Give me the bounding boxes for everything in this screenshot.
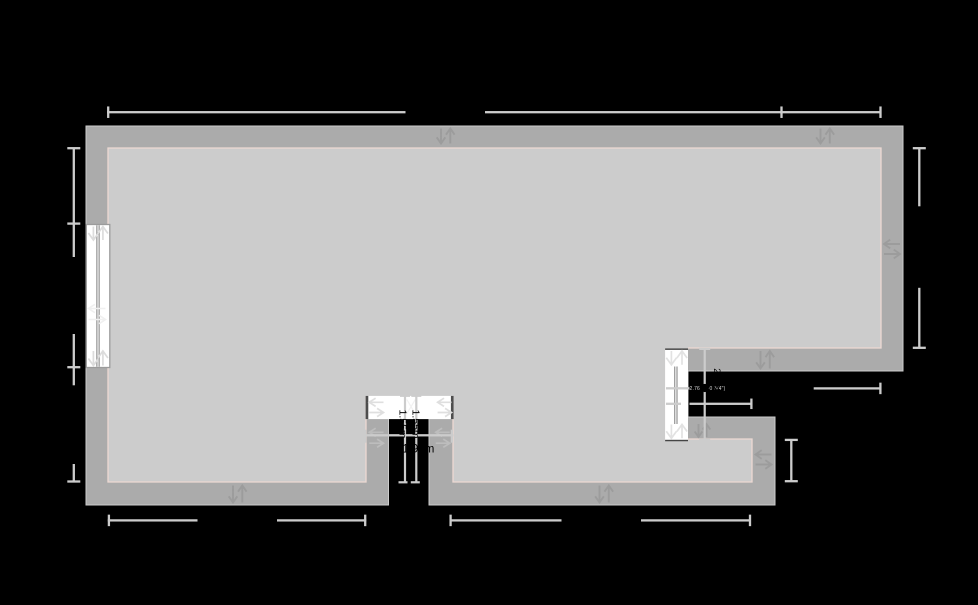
svg-text:1.55m: 1.55m xyxy=(396,410,408,439)
svg-text:2.76m: 2.76m xyxy=(712,368,722,393)
svg-text:1.55m: 1.55m xyxy=(409,410,421,439)
svg-text:1.91m: 1.91m xyxy=(402,443,434,455)
